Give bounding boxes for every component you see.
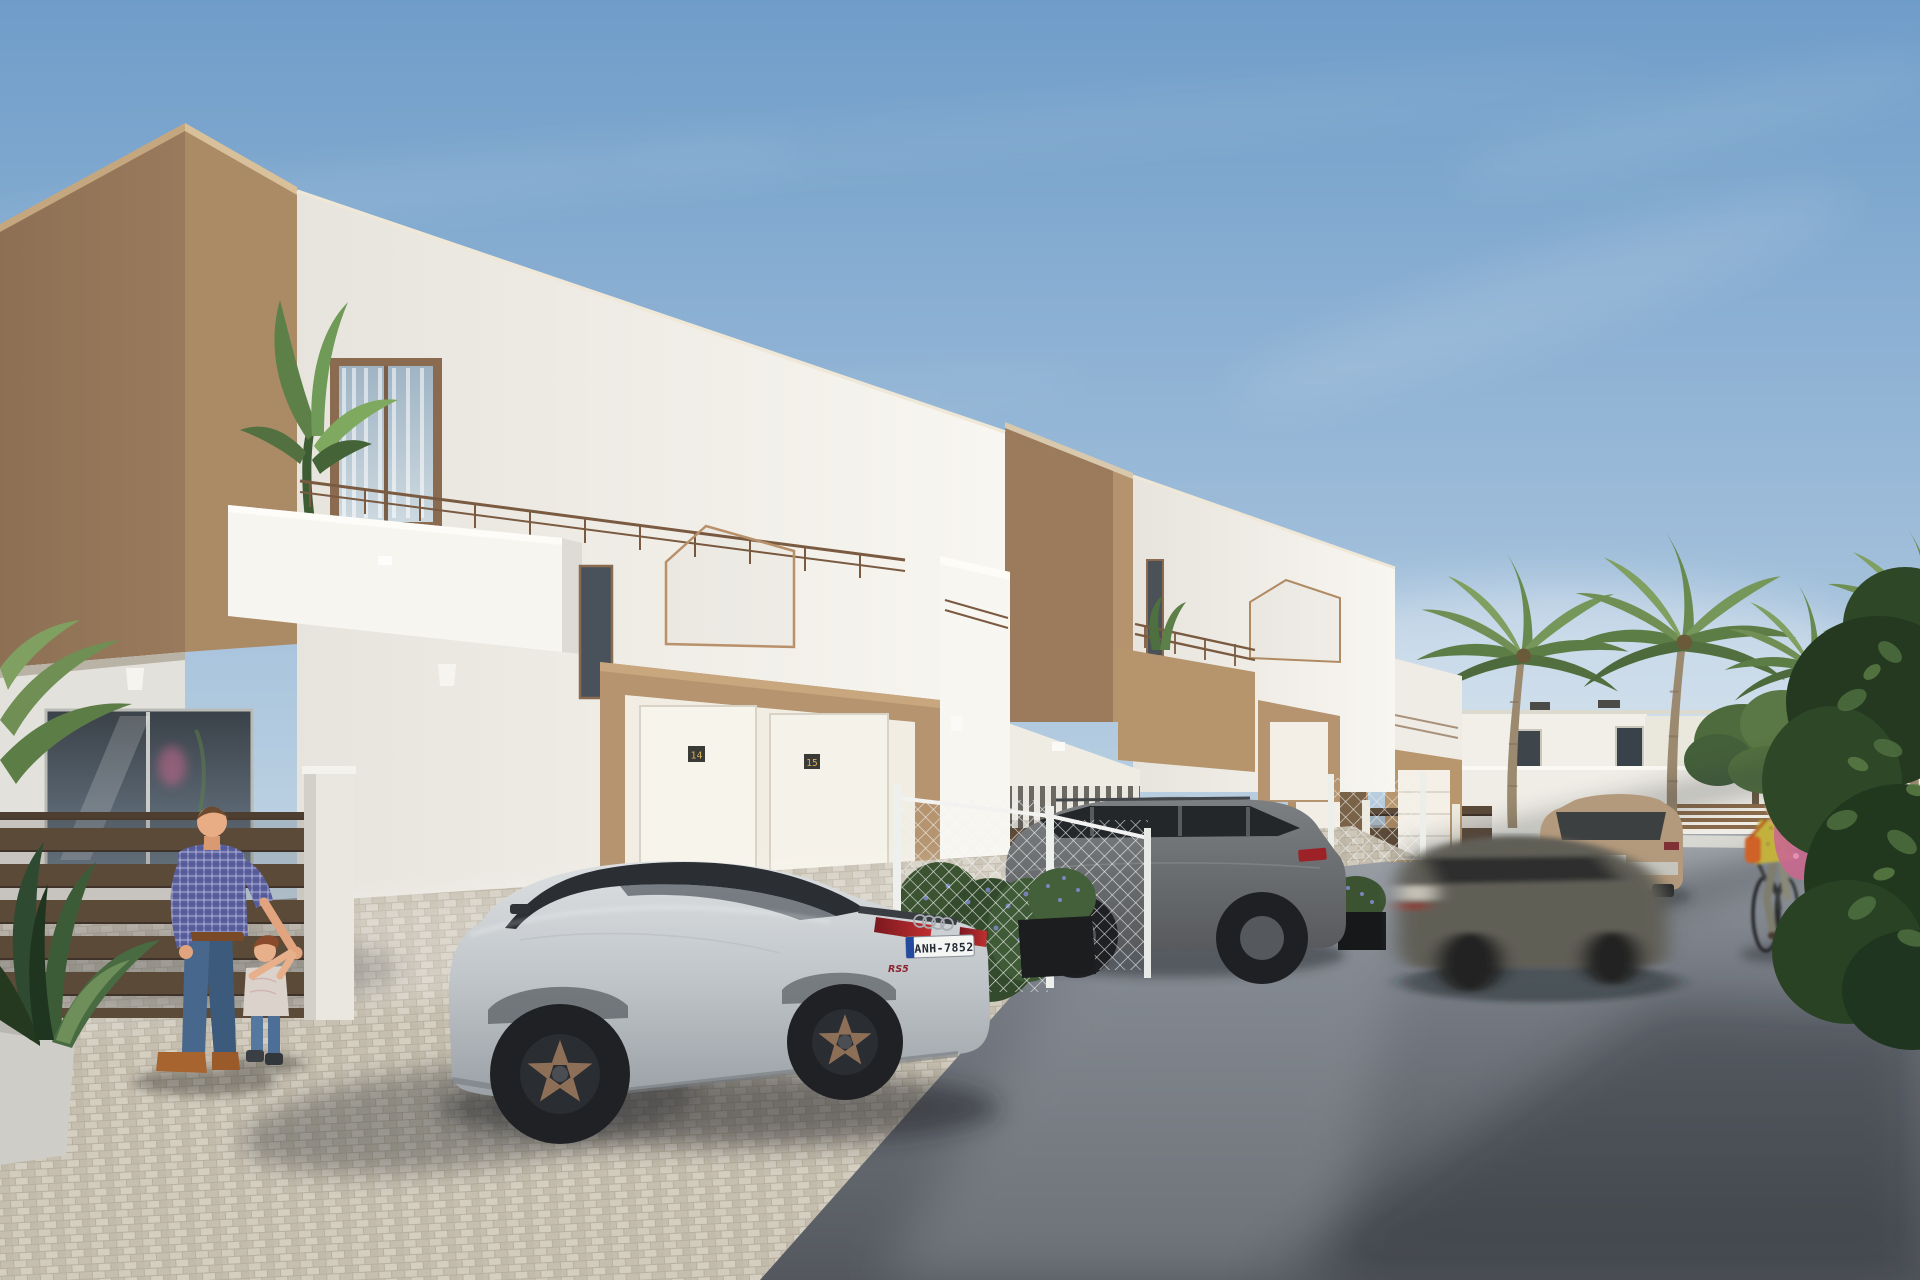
garage-door xyxy=(1270,722,1328,800)
house-number-plaque-14: 14 xyxy=(688,746,705,762)
house-number-plaque-15: 15 xyxy=(804,754,820,769)
house-number-14: 14 xyxy=(690,751,702,762)
rear-wheel xyxy=(488,987,630,1144)
background-window xyxy=(1616,727,1643,769)
roof-vent xyxy=(1530,702,1550,710)
license-plate-text: ANH-7852 xyxy=(914,940,974,956)
entrance-portal: 14 15 xyxy=(600,662,940,882)
townhouse-2-accent-wall xyxy=(1005,425,1113,722)
wall-lamp xyxy=(126,668,144,690)
wall-lamp xyxy=(1052,742,1065,751)
side-mirror xyxy=(510,904,530,914)
entrance-door-15 xyxy=(770,714,888,876)
wall-lamp xyxy=(951,716,963,731)
wall-lamp xyxy=(438,664,456,686)
mesh-fence-2 xyxy=(1328,772,1426,866)
house-number-15: 15 xyxy=(806,758,817,769)
roof-vent xyxy=(1598,700,1620,708)
license-plate: ANH-7852 xyxy=(906,935,975,958)
entrance-door-14 xyxy=(640,706,756,876)
render-scene: 14 15 xyxy=(0,0,1920,1280)
rs5-badge: RS5 xyxy=(888,964,909,975)
